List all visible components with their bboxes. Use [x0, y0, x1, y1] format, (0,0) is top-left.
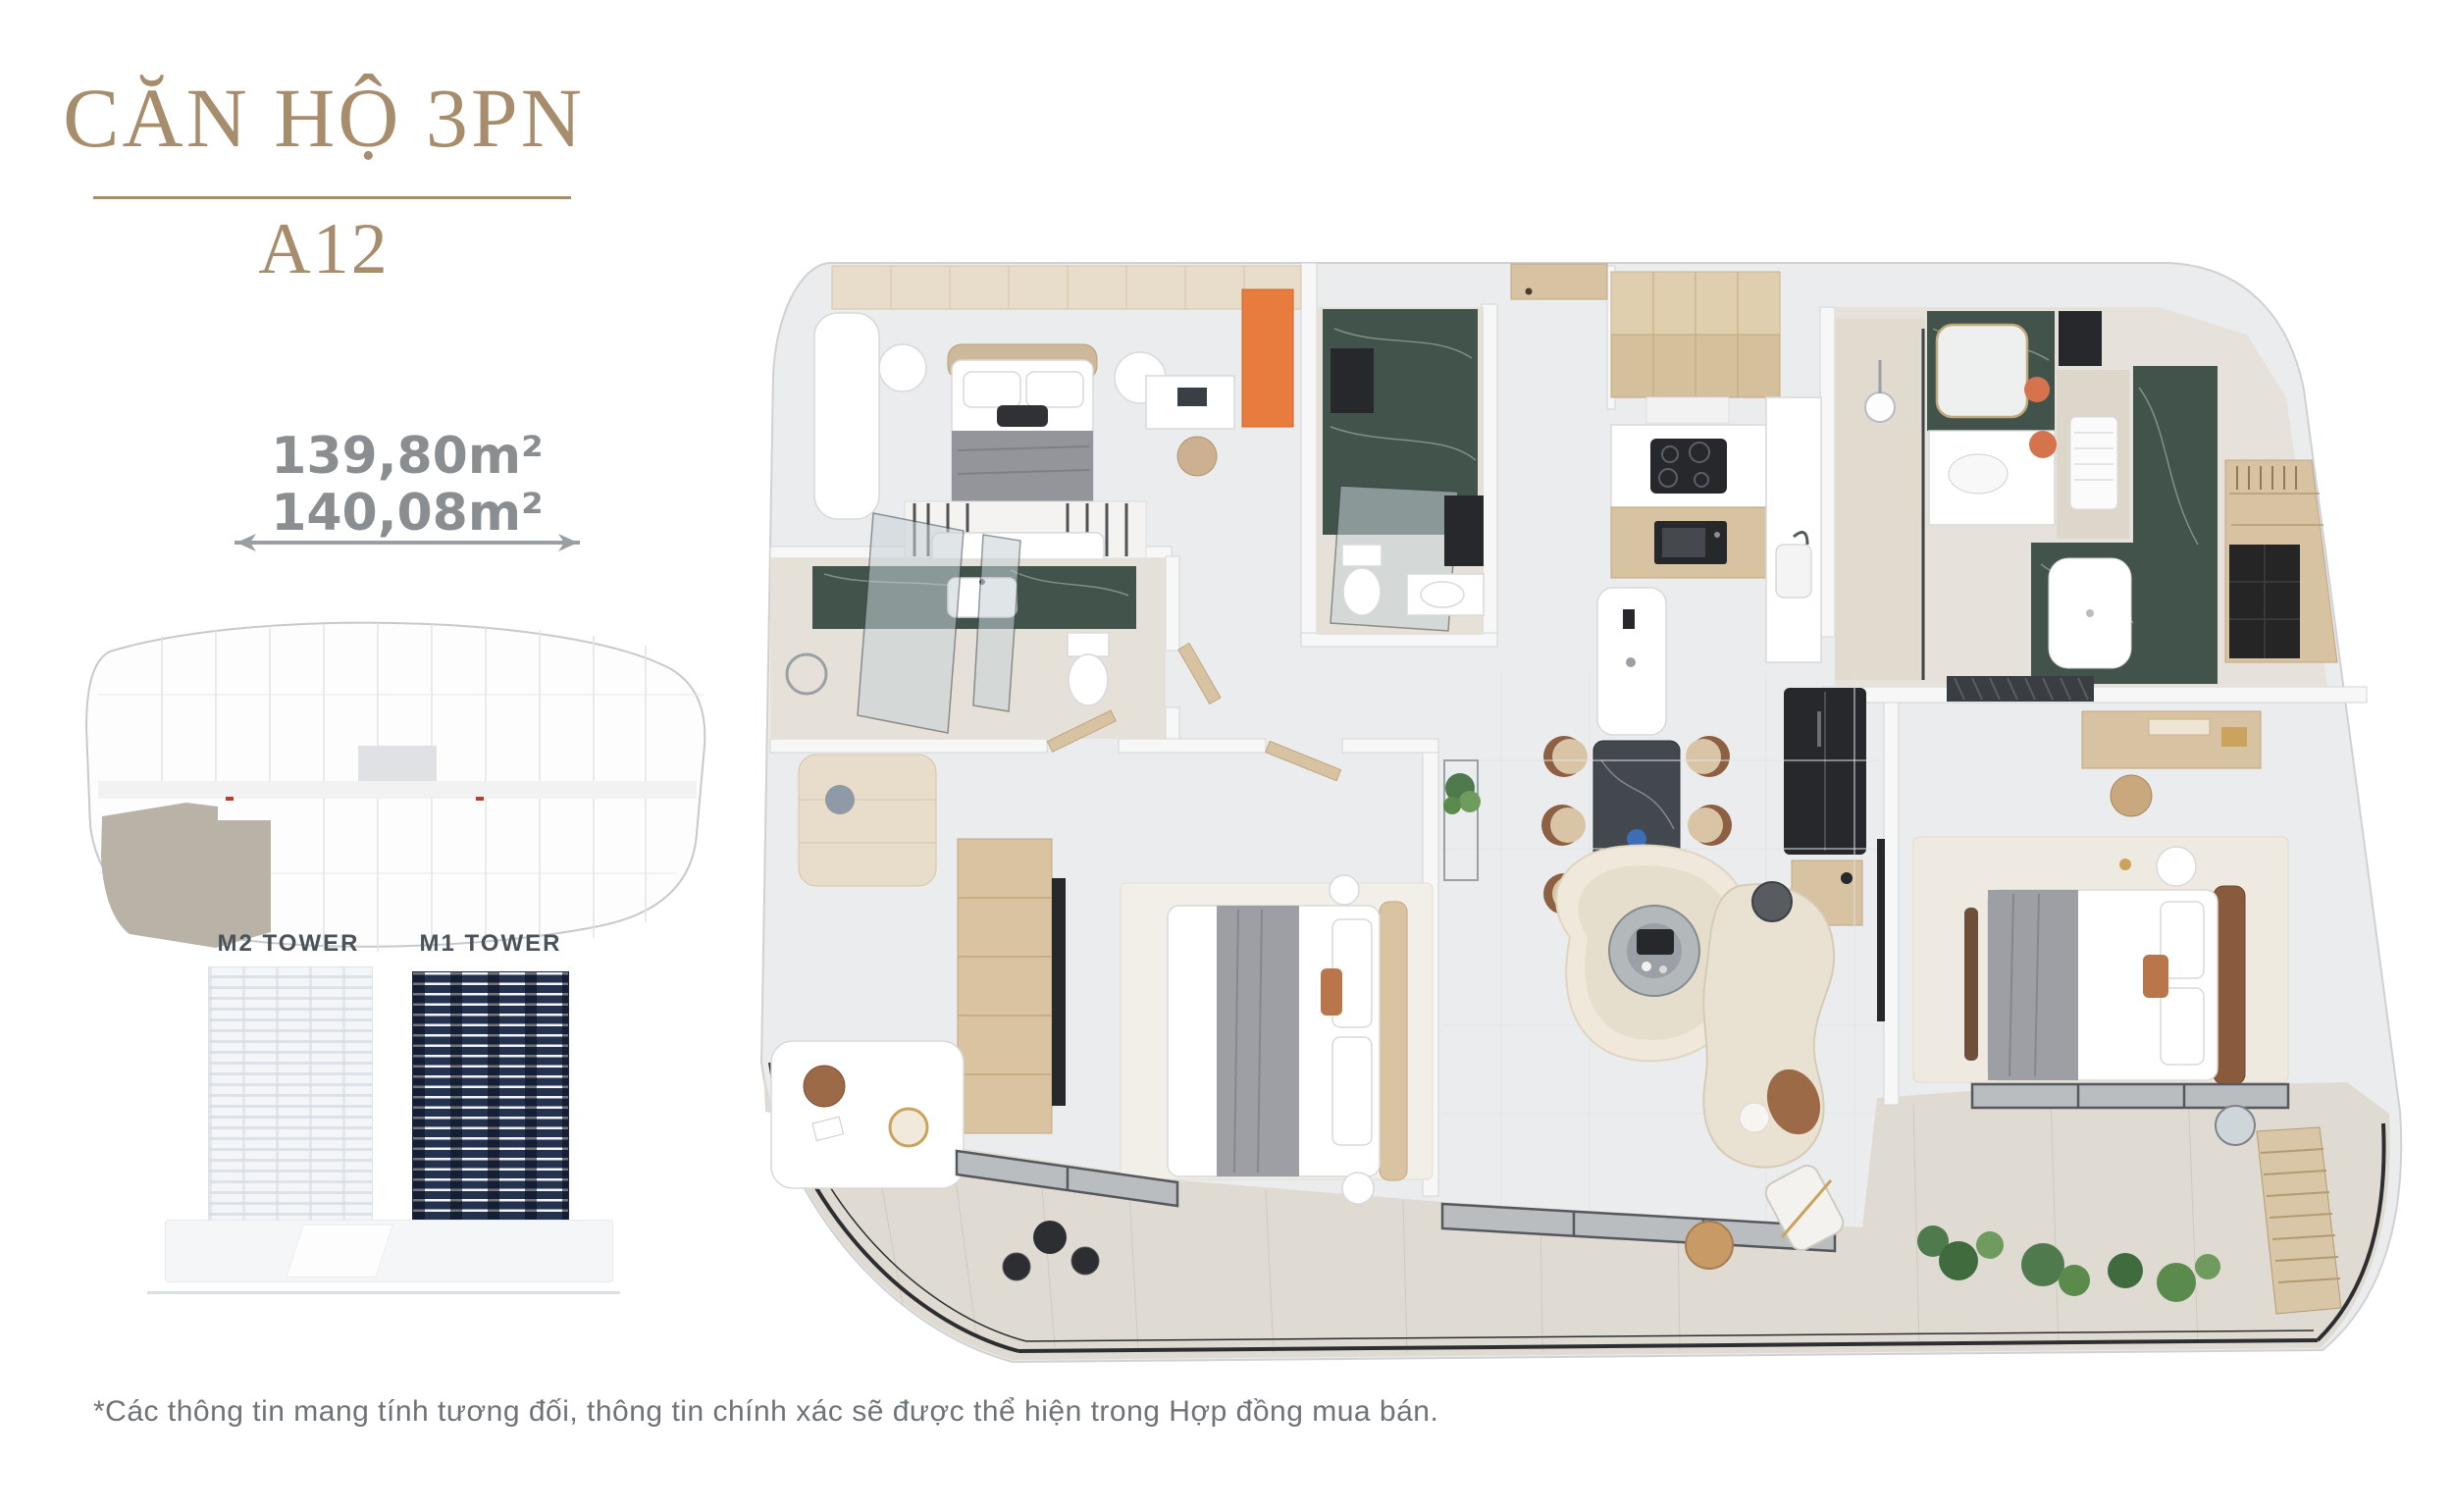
highlighted-unit-a12 [101, 803, 271, 948]
desk-3 [771, 1041, 964, 1188]
flowers-2 [2029, 431, 2057, 458]
gold-floor-lamp [2119, 859, 2131, 870]
bed-3 [1168, 902, 1407, 1180]
tower-m1-illustration-highlighted [412, 971, 569, 1221]
entrance-door [1511, 264, 1607, 299]
tower-label-m2: M2 TOWER [202, 930, 375, 958]
curved-wardrobe [814, 313, 879, 519]
kitchen-island [1597, 588, 1666, 735]
toilet-wc [1342, 545, 1382, 615]
bag [825, 785, 855, 814]
disclaimer-text: *Các thông tin mang tính tương đối, thôn… [93, 1395, 1467, 1429]
shower-glass-panel-1 [858, 513, 964, 733]
bed-bench [1964, 908, 1978, 1061]
desk-chair-2 [1177, 437, 1217, 476]
title-underline [93, 196, 571, 199]
microwave [1654, 521, 1727, 564]
range-hood [1646, 397, 1729, 423]
wc-shower-room [1317, 307, 1484, 635]
slider-master [1972, 1084, 2288, 1108]
master-nightstand [2157, 847, 2196, 886]
podium-ramp [286, 1225, 393, 1277]
toilet-2 [1068, 633, 1109, 705]
walk-in-closet [2225, 460, 2337, 662]
dimension-arrow-icon [221, 530, 594, 555]
rain-shower-head [1865, 392, 1895, 422]
unit-marker-red-2 [476, 797, 484, 801]
floorplan-sheet: CĂN HỘ 3PN A12 139,80m² 140,08m² [0, 0, 2453, 1512]
tower-label-m1: M1 TOWER [404, 930, 577, 958]
vanity-mirror [1937, 325, 2027, 417]
gold-chair [890, 1109, 927, 1146]
bedside-3b [1342, 1173, 1374, 1204]
wooden-stool [1686, 1222, 1733, 1269]
towel-rack [2057, 370, 2129, 539]
kitchen-sink [1776, 545, 1811, 598]
corner-closet [799, 755, 936, 886]
floorplate-minimap [69, 608, 726, 981]
louvered-sliding-door [1947, 676, 2094, 702]
tv-screen-master [1877, 839, 1885, 1021]
shower-niche [1331, 348, 1374, 413]
green-marble-vanity [812, 566, 1136, 629]
tv-unit-3 [958, 839, 1066, 1133]
master-bed [1964, 886, 2245, 1084]
unit-marker-red-1 [226, 797, 234, 801]
vanity-chair [2111, 775, 2152, 816]
area-figures: 139,80m² 140,08m² [137, 428, 677, 542]
laptop [1177, 388, 1207, 406]
area-line-1: 139,80m² [137, 428, 677, 485]
ground-line [147, 1291, 620, 1294]
tv-screen-3 [1052, 878, 1066, 1106]
page-title: CĂN HỘ 3PN [39, 69, 608, 167]
floorplate-core [358, 746, 437, 781]
tall-black-cabinet [1444, 495, 1484, 566]
floor-lamp [1841, 872, 1853, 884]
floorplate-corridor [98, 781, 697, 799]
bath-black-cabinet [2059, 311, 2102, 366]
refrigerator [1784, 688, 1866, 855]
balcony-glass-table [2216, 1106, 2255, 1145]
orange-accent-cabinet [1242, 289, 1293, 427]
cooktop [1650, 439, 1727, 494]
tower-m2-illustration [208, 966, 373, 1222]
wardrobe-band [832, 266, 1301, 309]
entrance [1511, 264, 1607, 299]
coffee-table [1609, 906, 1699, 996]
brown-chair [804, 1066, 845, 1107]
bedside-3a [1330, 875, 1359, 905]
master-vanity [1927, 311, 2057, 525]
flowers-1 [2024, 377, 2050, 402]
sink-counter [1766, 397, 1821, 662]
side-table [1752, 882, 1792, 921]
master-shower [1835, 319, 1925, 680]
apartment-3d-floorplan: .wall{fill:#f7f7f8;stroke:#d3d4d6;stroke… [756, 250, 2424, 1379]
nightstand-left [879, 344, 926, 391]
unit-code: A12 [39, 208, 608, 291]
curved-sofa [1703, 884, 1834, 1167]
